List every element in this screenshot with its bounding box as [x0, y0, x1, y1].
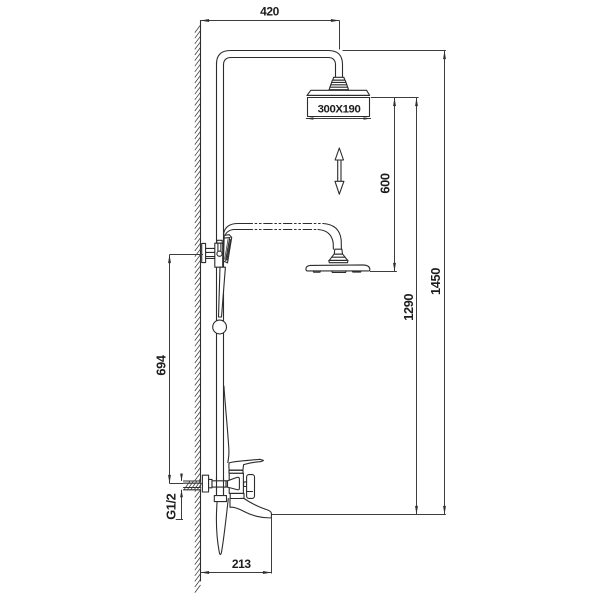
- svg-text:420: 420: [260, 5, 280, 19]
- svg-text:300X190: 300X190: [318, 104, 361, 116]
- svg-text:G1/2: G1/2: [163, 493, 178, 519]
- svg-text:1290: 1290: [401, 294, 416, 321]
- svg-text:213: 213: [232, 557, 252, 571]
- svg-text:600: 600: [378, 173, 393, 193]
- svg-text:694: 694: [153, 354, 168, 375]
- svg-text:1450: 1450: [428, 268, 443, 295]
